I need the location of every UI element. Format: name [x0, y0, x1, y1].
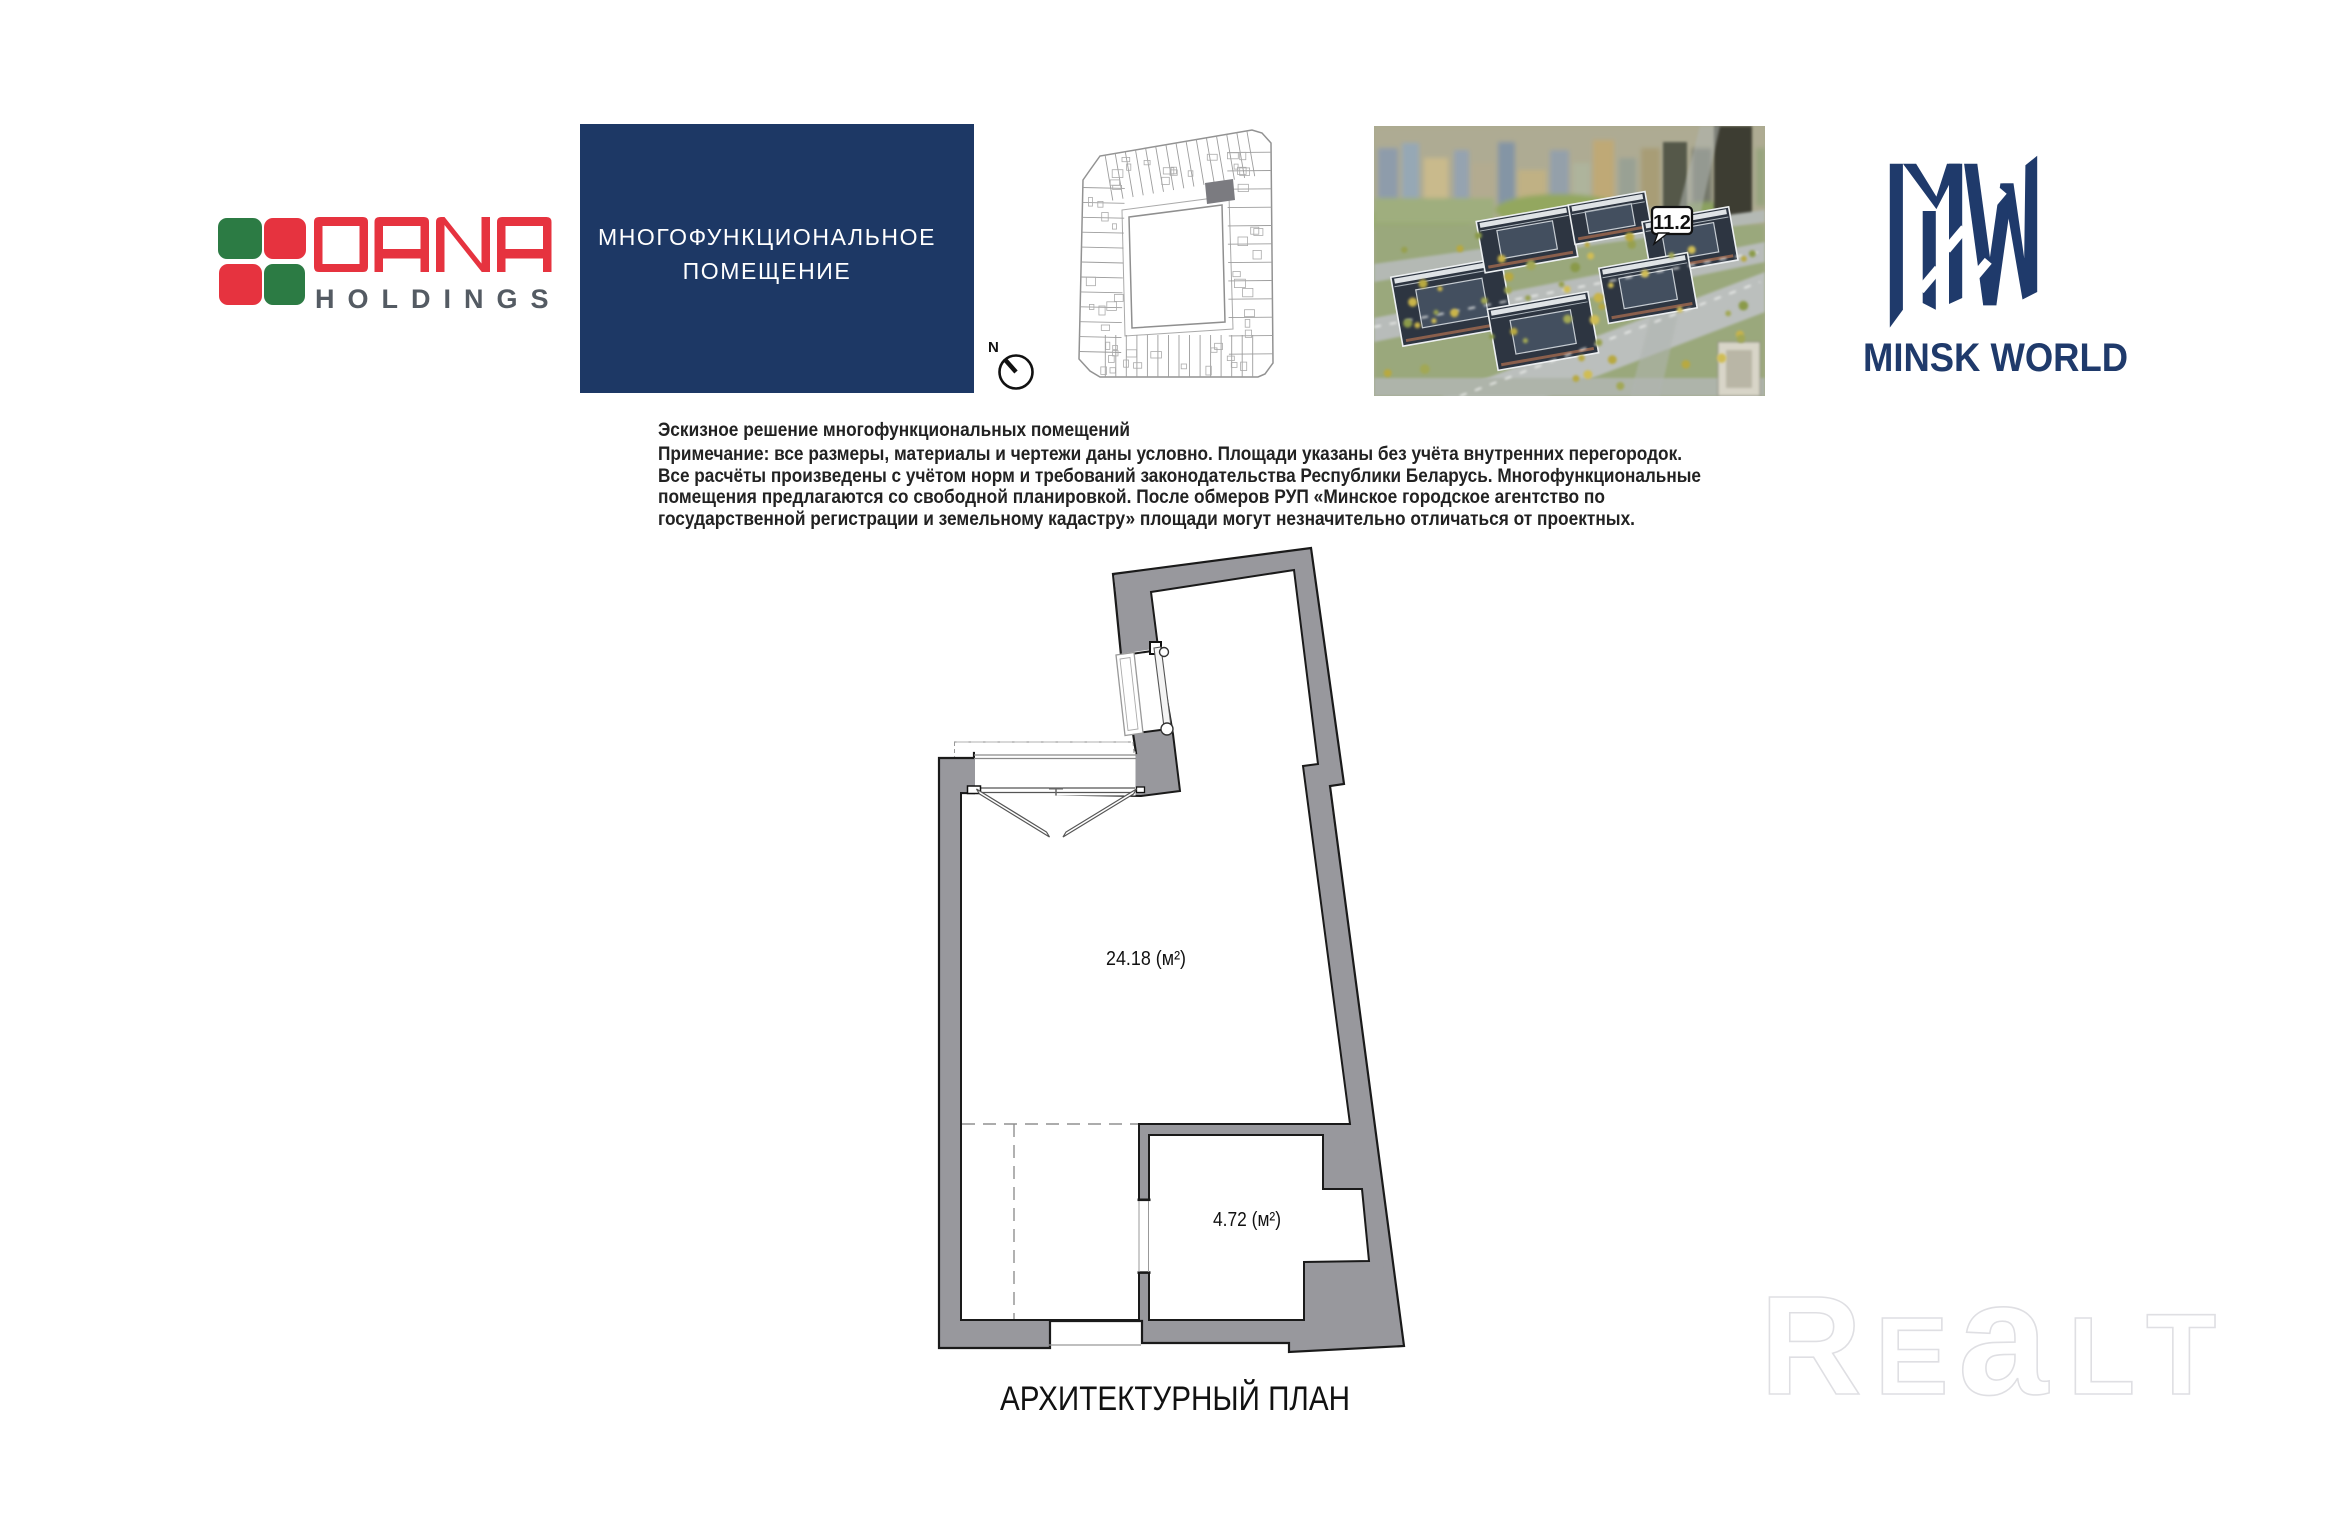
svg-text:МНОГОФУНКЦИОНАЛЬНОЕ: МНОГОФУНКЦИОНАЛЬНОЕ [598, 224, 936, 250]
svg-text:Эскизное решение многофункцион: Эскизное решение многофункциональных пом… [658, 420, 1130, 441]
svg-text:государственной регистрации и: государственной регистрации и земельному… [658, 509, 1635, 530]
svg-text:MINSK WORLD: MINSK WORLD [1863, 336, 2128, 380]
svg-text:11.2: 11.2 [1653, 212, 1691, 234]
svg-text:L: L [2068, 1295, 2135, 1418]
svg-text:E: E [1875, 1295, 1948, 1418]
svg-text:a: a [1958, 1248, 2050, 1429]
svg-text:АРХИТЕКТУРНЫЙ ПЛАН: АРХИТЕКТУРНЫЙ ПЛАН [1000, 1380, 1350, 1418]
svg-text:R: R [1760, 1266, 1860, 1424]
svg-text:4.72 (м²): 4.72 (м²) [1213, 1208, 1281, 1231]
svg-text:Примечание: все размеры, матер: Примечание: все размеры, материалы и чер… [658, 444, 1682, 465]
svg-text:Все расчёты произведены с учёт: Все расчёты произведены с учётом норм и … [658, 466, 1701, 487]
svg-text:T: T [2146, 1291, 2216, 1419]
svg-text:24.18 (м²): 24.18 (м²) [1106, 947, 1186, 970]
svg-text:помещения предлагаются со своб: помещения предлагаются со свободной план… [658, 487, 1605, 508]
svg-text:HOLDINGS: HOLDINGS [315, 284, 562, 314]
svg-text:N: N [988, 339, 999, 356]
svg-text:ПОМЕЩЕНИЕ: ПОМЕЩЕНИЕ [683, 258, 852, 284]
